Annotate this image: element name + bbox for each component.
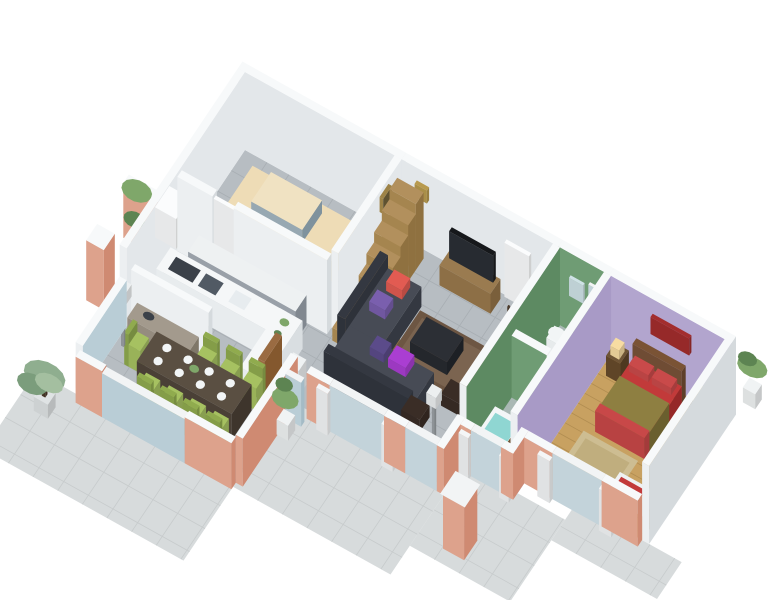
- house-floor-plan-3d: [0, 0, 780, 600]
- window-shutter-3: [459, 429, 471, 481]
- right-plant-pot: [743, 378, 762, 410]
- floor-plan-stage: [0, 0, 780, 600]
- window-shutter: [316, 383, 330, 436]
- window-shutter-5: [537, 450, 552, 503]
